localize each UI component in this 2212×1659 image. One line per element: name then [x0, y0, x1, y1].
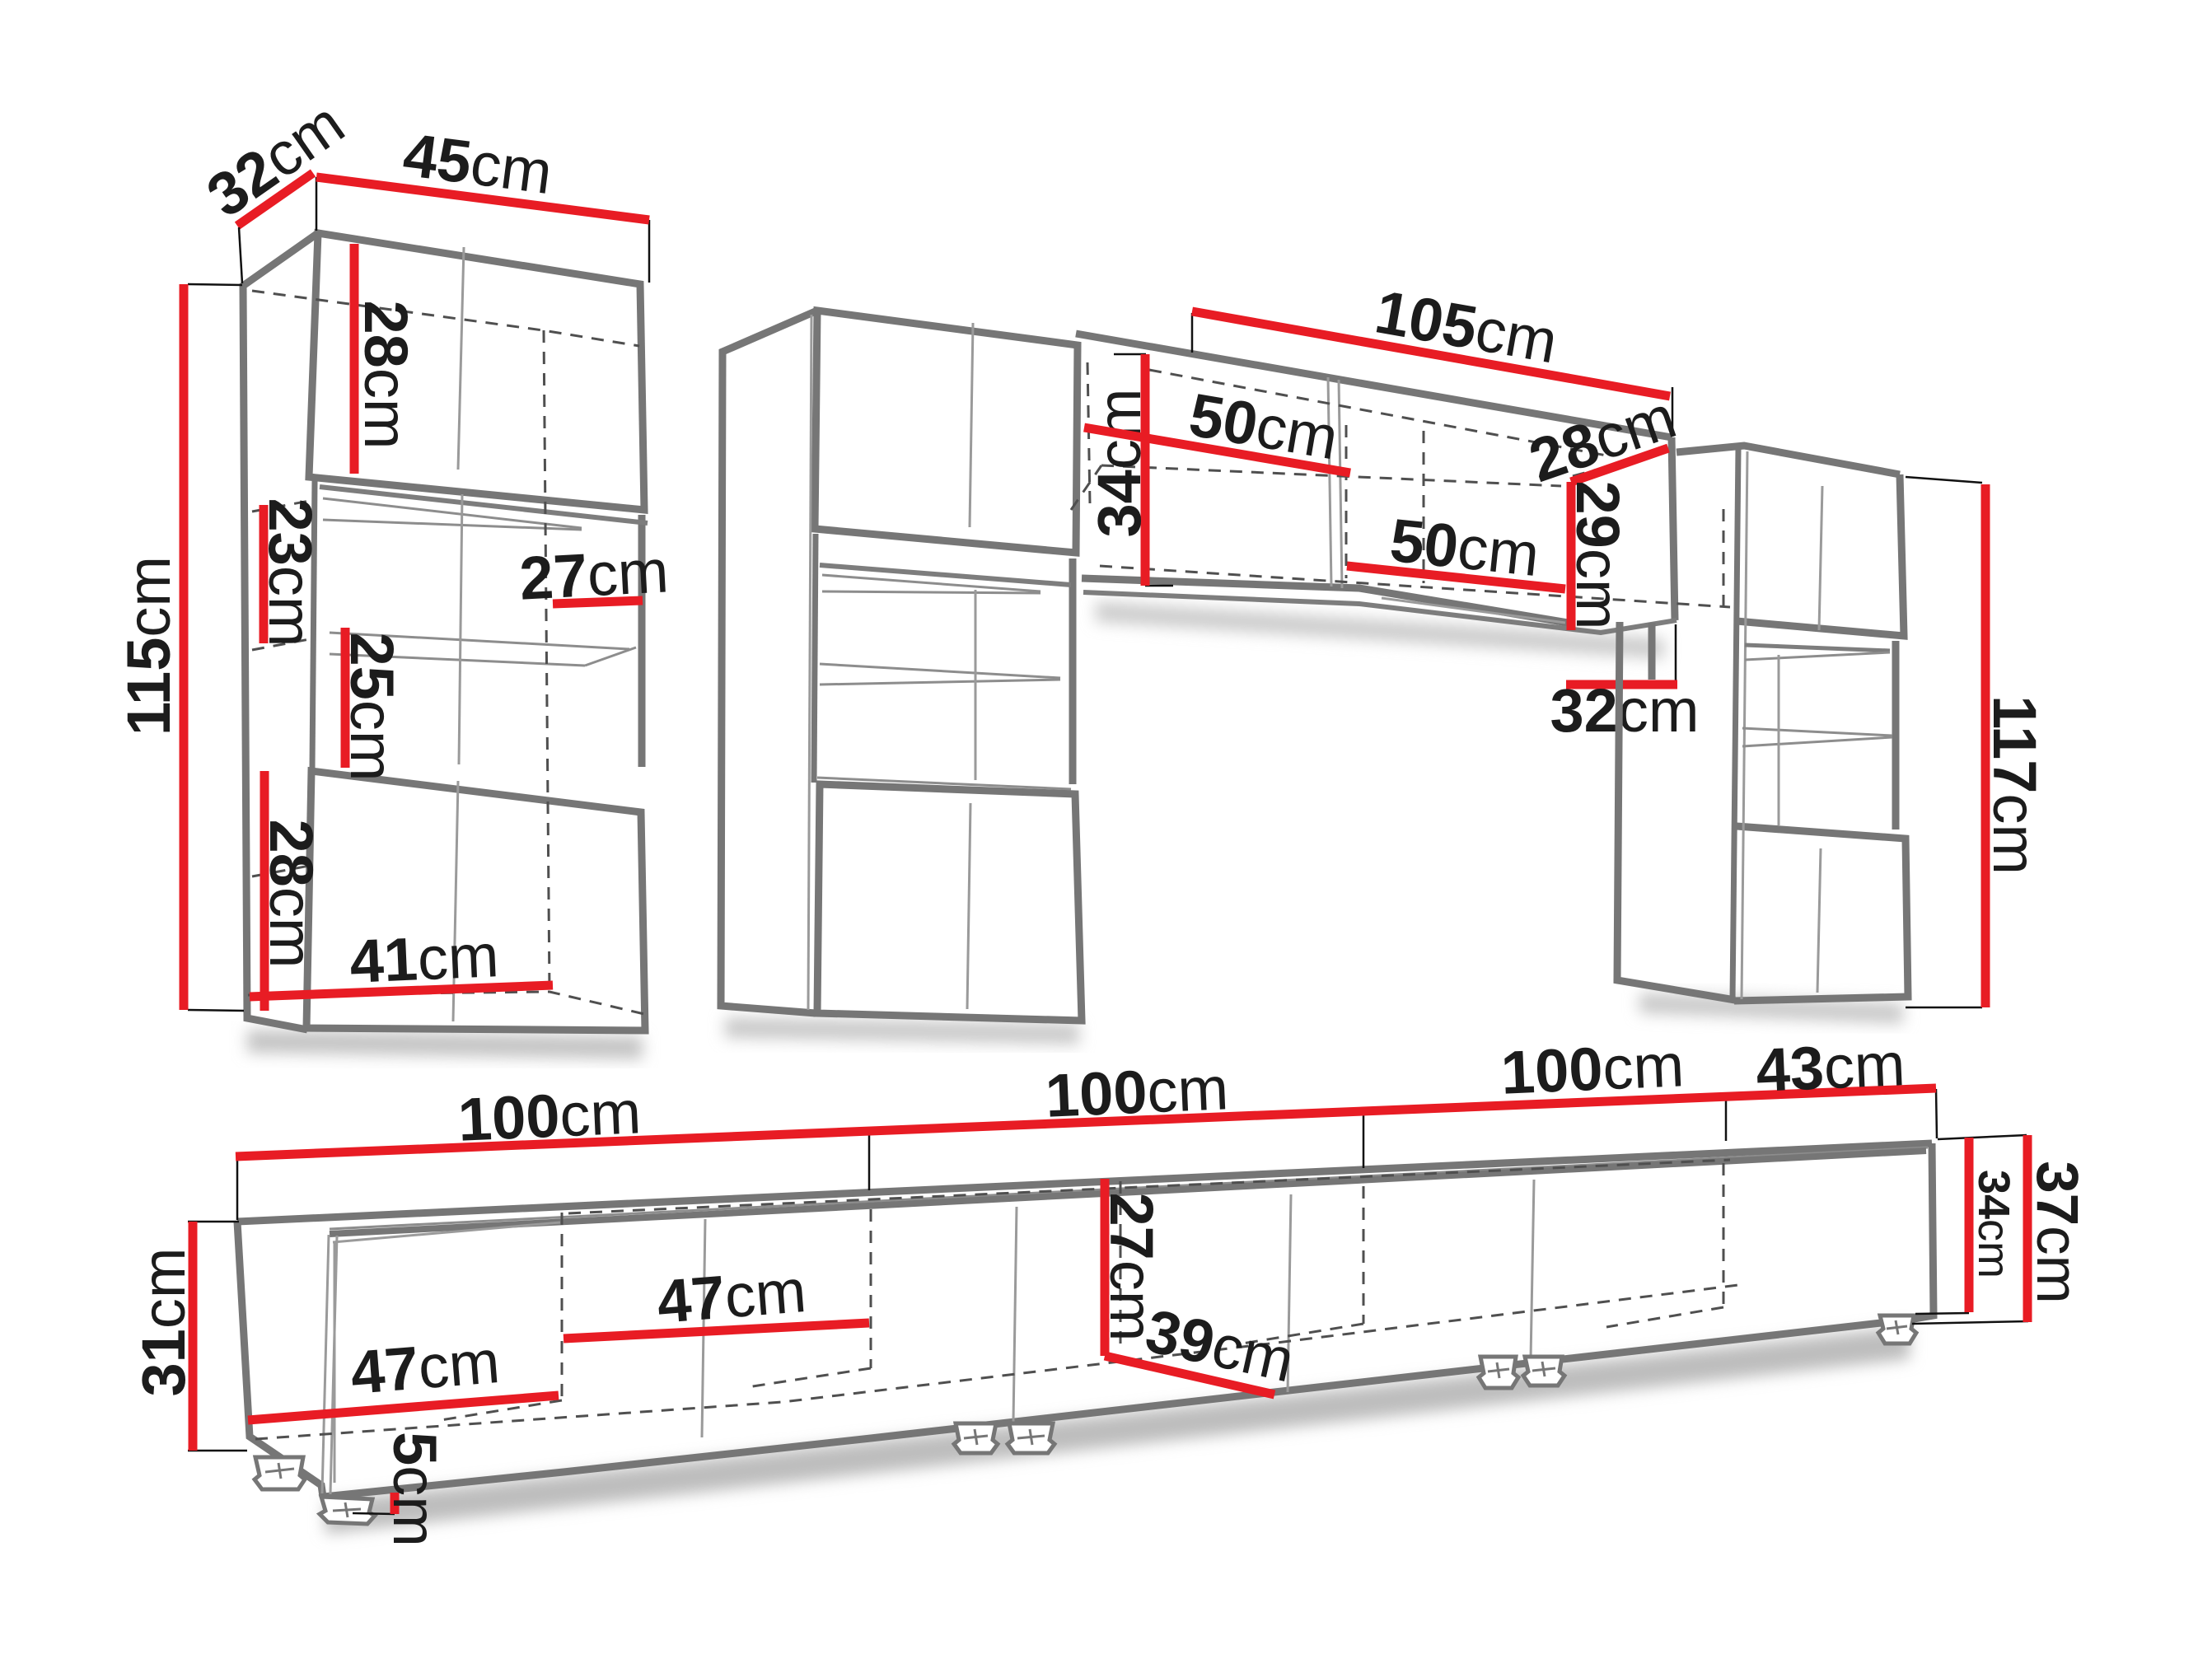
svg-text:47cm: 47cm	[348, 1327, 503, 1407]
svg-text:100cm: 100cm	[456, 1077, 643, 1154]
svg-text:100cm: 100cm	[1044, 1054, 1230, 1130]
svg-text:23cm: 23cm	[257, 498, 325, 647]
svg-text:100cm: 100cm	[1499, 1030, 1686, 1107]
svg-text:27cm: 27cm	[517, 536, 670, 612]
svg-text:41cm: 41cm	[348, 921, 500, 996]
svg-text:28cm: 28cm	[353, 301, 421, 450]
svg-text:32cm: 32cm	[1550, 676, 1700, 745]
svg-text:115cm: 115cm	[115, 556, 183, 736]
svg-text:25cm: 25cm	[339, 633, 407, 782]
svg-text:43cm: 43cm	[1755, 1030, 1906, 1105]
svg-text:117cm: 117cm	[1981, 695, 2050, 875]
svg-text:5cm: 5cm	[381, 1432, 450, 1547]
svg-text:31cm: 31cm	[129, 1248, 198, 1397]
svg-text:34cm: 34cm	[1085, 389, 1153, 538]
svg-text:37cm: 37cm	[2025, 1161, 2090, 1304]
svg-text:28cm: 28cm	[258, 820, 326, 969]
svg-text:34cm: 34cm	[1969, 1170, 2018, 1278]
svg-text:29cm: 29cm	[1564, 481, 1633, 630]
svg-text:47cm: 47cm	[655, 1256, 809, 1336]
